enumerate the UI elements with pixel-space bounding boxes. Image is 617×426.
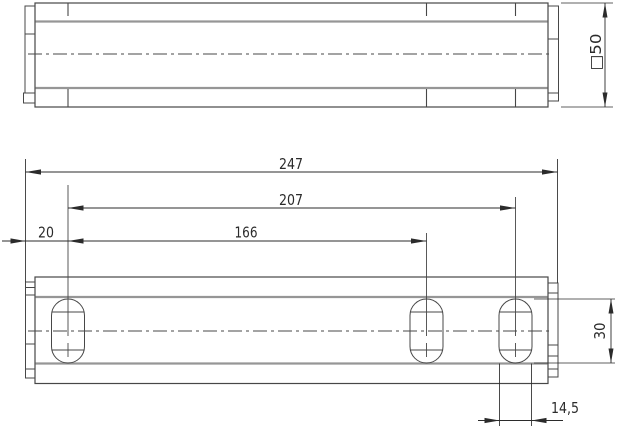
dim-square50: □50 [561,3,613,107]
dim-arrow-right [542,169,558,174]
slot-hole-1 [52,185,85,363]
dim-arrow-outside-left [11,238,26,243]
dim-20-166: 20 166 [2,224,427,244]
dim-arrow-down [603,93,608,108]
drawing-page: □50 [0,0,617,426]
top-view-slot-ticks [68,3,516,107]
dim-arrow-left [26,169,42,174]
top-view-left-end-cap [24,6,36,103]
dim-207-label: 207 [279,191,303,209]
dim-arrow-down [609,349,614,364]
dim-247-label: 247 [279,155,303,173]
top-view-right-end-cap [548,6,559,101]
cap-plate [26,282,36,378]
cap-foot [24,93,36,103]
front-view-left-end-cap [26,282,36,378]
dim-arrow-right [500,205,516,210]
dim-166-label: 166 [235,224,258,242]
slot-hole-3 [499,197,532,363]
technical-drawing-canvas: □50 [0,0,617,426]
cap-plate [25,6,35,93]
dim-arrow-right [411,238,427,243]
dim-arrow-up [609,299,614,314]
front-view-body [35,277,548,384]
top-view [24,3,559,107]
front-view [26,185,559,384]
dim-arrow-left [68,238,84,243]
dim-arrow-outside-left [485,418,500,423]
dim-20-label: 20 [38,224,54,242]
dim-14-5: 14,5 [478,364,579,426]
dim-30-label: 30 [591,323,609,340]
dim-207: 207 [68,191,516,211]
top-view-body [35,3,548,107]
dim-arrow-left [68,205,84,210]
dim-square50-label: □50 [587,34,605,71]
dim-arrow-outside-right [532,418,547,423]
cap-plate [548,6,559,93]
cap-foot [548,93,559,101]
dim-247: 247 [26,155,558,283]
dim-arrow-up [603,3,608,18]
dim-14-5-label: 14,5 [551,399,579,417]
